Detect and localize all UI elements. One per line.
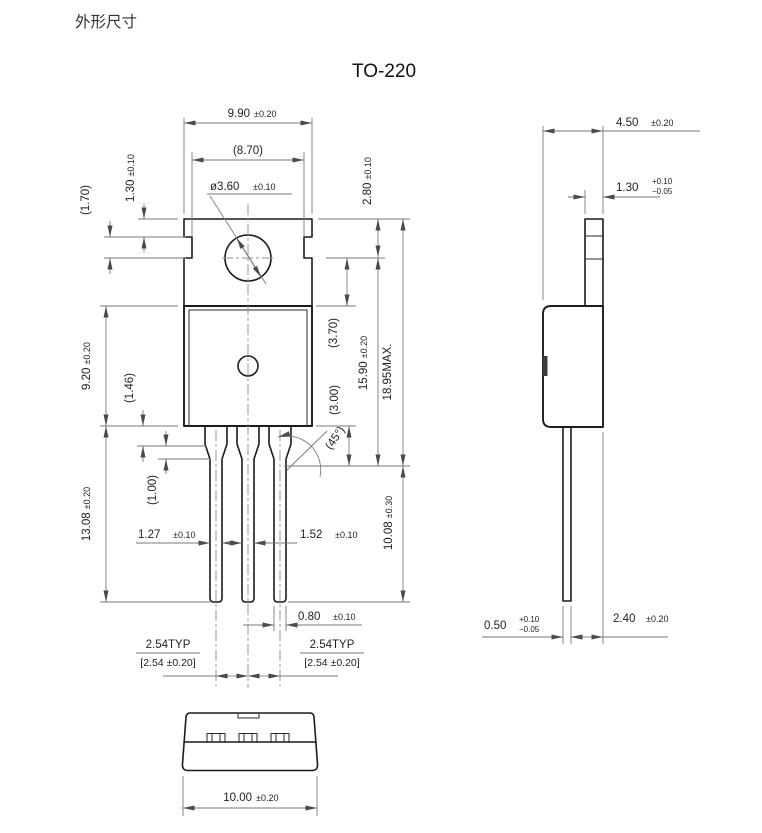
dim-hole-dia-value: ø3.60 xyxy=(210,181,239,193)
dim-mid-height: 15.90±0.20 xyxy=(358,336,370,390)
dim-lead-width1-tol: ±0.10 xyxy=(173,530,195,540)
dim-lead-exposed: 10.08±0.30 xyxy=(383,496,395,550)
dim-body-height: 9.20±0.20 xyxy=(81,342,93,390)
dim-taper-height: (1.00) xyxy=(147,475,159,505)
dim-lead-thickness-tolplus: +0.10 xyxy=(519,615,540,624)
dim-hole-center: 2.80±0.10 xyxy=(362,157,374,205)
dim-offset-tol: ±0.20 xyxy=(646,614,668,624)
dim-lead-tip-width-tol: ±0.10 xyxy=(333,612,355,622)
dim-depth-value: 4.50 xyxy=(616,117,638,129)
dim-pitch-left-line1: 2.54TYP xyxy=(146,639,191,651)
side-view xyxy=(543,219,603,601)
leader-arrow xyxy=(249,258,261,277)
dim-depth-tol: ±0.20 xyxy=(651,118,673,128)
dim-pitch-right-line2: [2.54 ±0.20] xyxy=(304,657,359,669)
dim-total-height: 18.95MAX. xyxy=(382,344,394,401)
dim-lead-tip-width-value: 0.80 xyxy=(298,611,320,623)
dim-pitch-right-line1: 2.54TYP xyxy=(310,639,355,651)
dim-lead-length: 13.08±0.20 xyxy=(81,487,93,541)
bottom-notch xyxy=(238,714,259,718)
dim-chamfer-angle: (45°) xyxy=(323,424,347,452)
dim-front-width-tol: ±0.20 xyxy=(254,109,276,119)
page-title: 外形尺寸 xyxy=(75,13,137,31)
dim-lead-width2-value: 1.52 xyxy=(300,529,322,541)
bottom-pin-1 xyxy=(207,734,225,743)
dim-front-width-value: 9.90 xyxy=(228,108,250,120)
chamfer-angle-arrow xyxy=(277,431,290,440)
bottom-view xyxy=(182,713,317,771)
bottom-pin-2 xyxy=(239,734,257,743)
dim-lead-thickness-tolminus: −0.05 xyxy=(519,625,540,634)
side-tab-outline xyxy=(585,219,603,306)
side-gate-mark xyxy=(543,356,548,376)
side-dimensions: 4.50 ±0.20 1.30 +0.10 −0.05 0.50 +0.10 −… xyxy=(482,117,700,644)
bottom-pin-3 xyxy=(271,734,289,743)
dim-body-to-chamfer: (3.00) xyxy=(329,385,341,415)
side-lead xyxy=(563,427,571,601)
datasheet-outline-page: 外形尺寸 TO-220 xyxy=(0,0,762,833)
chamfer-angle-arc xyxy=(278,436,321,477)
leader-arrow xyxy=(237,238,249,258)
dim-bottom-width-tol: ±0.20 xyxy=(256,793,278,803)
dim-front-inner-width: (8.70) xyxy=(233,145,263,157)
outline-drawing: 外形尺寸 TO-220 xyxy=(0,0,762,833)
dim-pitch-left-line2: [2.54 ±0.20] xyxy=(140,657,195,669)
dim-bottom-width-value: 10.00 xyxy=(223,792,252,804)
side-body-outline xyxy=(543,306,603,427)
bottom-dimensions: 10.00 ±0.20 xyxy=(183,776,317,816)
dim-lead-thickness-value: 0.50 xyxy=(484,620,506,632)
dim-tab-thickness-tolminus: −0.05 xyxy=(652,187,673,196)
dim-lead-width1-value: 1.27 xyxy=(138,529,160,541)
dim-hole-to-body: (3.70) xyxy=(328,318,340,348)
dim-hole-dia-tol: ±0.10 xyxy=(253,182,275,192)
package-name: TO-220 xyxy=(352,61,416,82)
dim-offset-value: 2.40 xyxy=(613,613,635,625)
dim-notch-height: (1.70) xyxy=(80,185,92,215)
dim-shoulder-height: (1.46) xyxy=(124,373,136,403)
dim-tab-step: 1.30±0.10 xyxy=(125,154,137,202)
dim-tab-thickness-value: 1.30 xyxy=(616,182,638,194)
dim-tab-thickness-tolplus: +0.10 xyxy=(652,177,673,186)
front-dimensions: 9.90 ±0.20 (8.70) ø3.60 ±0.10 (1.70) 1.3… xyxy=(80,108,410,676)
dim-lead-width2-tol: ±0.10 xyxy=(335,530,357,540)
